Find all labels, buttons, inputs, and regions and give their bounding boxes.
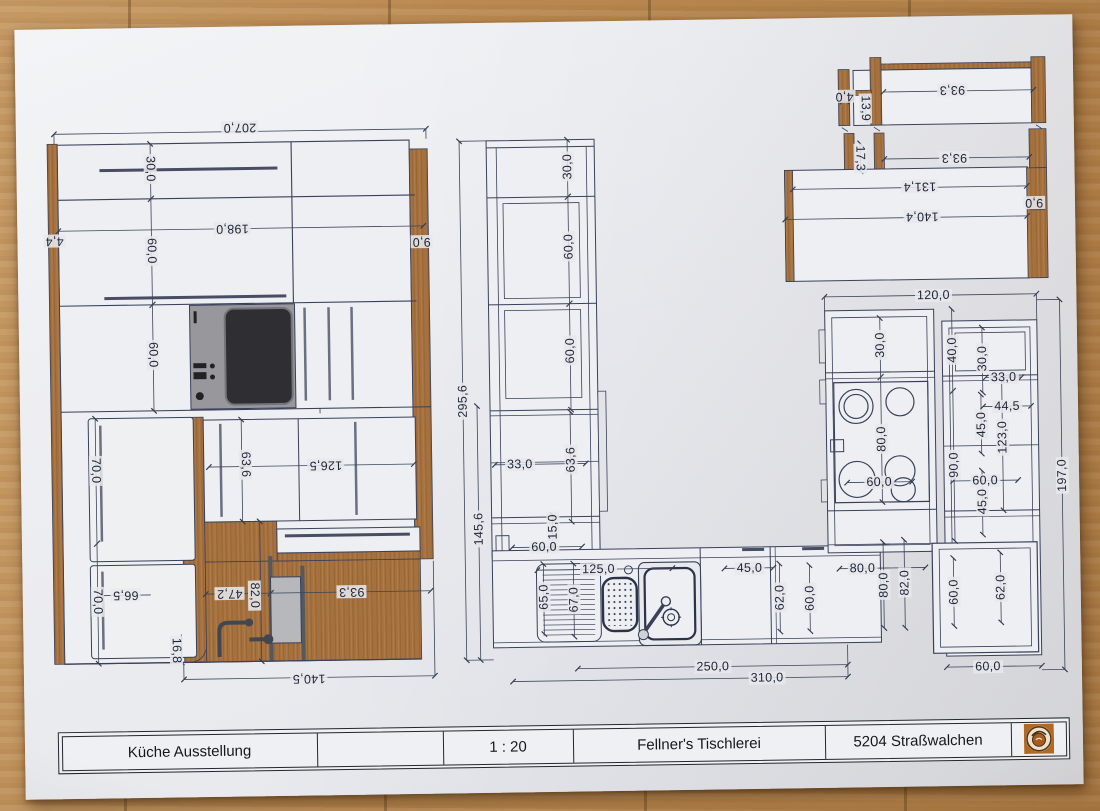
dim-label: 198,0 (214, 222, 251, 235)
title-block-inner: Küche Ausstellung 1 : 20 Fellner's Tisch… (61, 721, 1066, 771)
dim-label: 60,0 (864, 476, 894, 489)
dim-label: 60,0 (564, 336, 577, 366)
title-cell-empty (317, 731, 443, 766)
dim-label: 17,3 (854, 143, 867, 173)
dim-label: 45,0 (975, 410, 988, 440)
dim-label: 63,6 (564, 445, 577, 475)
dim-label: 30,0 (976, 344, 989, 374)
title-cell-scale: 1 : 20 (443, 729, 573, 764)
dim-label: 65,0 (537, 582, 550, 612)
dim-label: 93,3 (937, 84, 967, 97)
drawer-unit (277, 527, 420, 553)
corner-detail-linework (780, 54, 1064, 298)
dim-label: 33,0 (989, 371, 1019, 384)
company-name: Fellner's Tischlerei (637, 734, 761, 753)
dim-label: 62,0 (773, 583, 786, 613)
title-block: Küche Ausstellung 1 : 20 Fellner's Tisch… (58, 717, 1071, 774)
company-logo-stamp-icon (1023, 724, 1053, 754)
dim-label: 295,6 (456, 383, 469, 420)
dim-label: 131,4 (901, 180, 938, 193)
dim-label: 93,3 (337, 585, 367, 598)
dim-label: 70,0 (91, 587, 104, 617)
dim-label: 15,0 (546, 512, 559, 542)
dim-label: 82,0 (248, 581, 261, 611)
dim-label: 30,0 (144, 154, 157, 184)
oven-appliance (189, 304, 296, 410)
dim-label: 90,0 (947, 450, 960, 480)
dim-label: 250,0 (694, 660, 731, 673)
dim-label: 13,9 (859, 93, 872, 123)
dim-label: 4,0 (833, 90, 855, 103)
dim-label: 60,0 (529, 541, 559, 554)
dim-label: 60,0 (145, 236, 158, 266)
corner-detail: 93,3 4,0 13,9 17,3 93,3 131,4 9,0 140,4 (780, 54, 1064, 298)
drawing-scale: 1 : 20 (489, 738, 527, 756)
dim-label: 70,0 (89, 456, 102, 486)
dim-label: 207,0 (221, 121, 258, 134)
dim-label: 45,0 (735, 562, 765, 575)
dim-label: 126,5 (307, 459, 344, 472)
dim-label: 60,0 (970, 474, 1000, 487)
dim-label: 125,0 (580, 563, 617, 576)
title-cell-logo (1011, 722, 1065, 756)
dim-label: 63,6 (239, 450, 252, 480)
company-location: 5204 Straßwalchen (853, 731, 982, 750)
dim-label: 40,0 (946, 335, 959, 365)
dim-label: 45,0 (976, 487, 989, 517)
dim-label: 30,0 (561, 152, 574, 182)
left-elevation: 207,0 198,0 30,0 60,0 60,0 4,4 9,0 70,0 … (46, 109, 455, 715)
dim-label: 60,0 (562, 232, 575, 262)
dim-label: 80,0 (848, 562, 878, 575)
dim-label: 44,5 (992, 400, 1022, 413)
dim-label: 4,4 (43, 235, 65, 248)
dim-label: 30,0 (874, 330, 887, 360)
dim-label: 9,0 (1023, 196, 1045, 209)
dim-label: 80,0 (875, 424, 888, 454)
dim-label: 16,8 (170, 636, 183, 666)
dim-label: 66,5 (111, 589, 141, 602)
title-cell-location: 5204 Straßwalchen (825, 723, 1011, 759)
dim-label: 310,0 (749, 671, 786, 684)
wooden-table-surface: 207,0 198,0 30,0 60,0 60,0 4,4 9,0 70,0 … (0, 0, 1100, 811)
title-cell-project: Küche Ausstellung (62, 733, 317, 770)
paper-sheet: 207,0 198,0 30,0 60,0 60,0 4,4 9,0 70,0 … (14, 14, 1083, 800)
dim-label: 82,0 (898, 568, 911, 598)
dim-label: 60,0 (947, 577, 960, 607)
dim-label: 140,4 (904, 210, 941, 223)
dim-label: 80,0 (877, 570, 890, 600)
dim-label: 123,0 (996, 419, 1009, 456)
dim-label: 9,0 (410, 235, 432, 248)
dim-label: 60,0 (803, 583, 816, 613)
dim-label: 93,3 (939, 151, 969, 164)
dim-label: 47,2 (215, 587, 245, 600)
dim-label: 60,0 (973, 660, 1003, 673)
dim-label: 140,5 (291, 672, 328, 685)
fridge (88, 417, 197, 659)
title-cell-company: Fellner's Tischlerei (573, 725, 825, 762)
drawing-title: Küche Ausstellung (128, 742, 252, 761)
dim-label: 67,0 (567, 585, 580, 615)
corner-detail-structure (783, 55, 1048, 282)
left-elevation-linework (46, 109, 455, 715)
dim-label: 145,6 (472, 511, 485, 548)
dim-label: 33,0 (505, 458, 535, 471)
dim-label: 197,0 (1056, 457, 1069, 494)
dim-label: 60,0 (147, 340, 160, 370)
dim-label: 62,0 (994, 572, 1007, 602)
